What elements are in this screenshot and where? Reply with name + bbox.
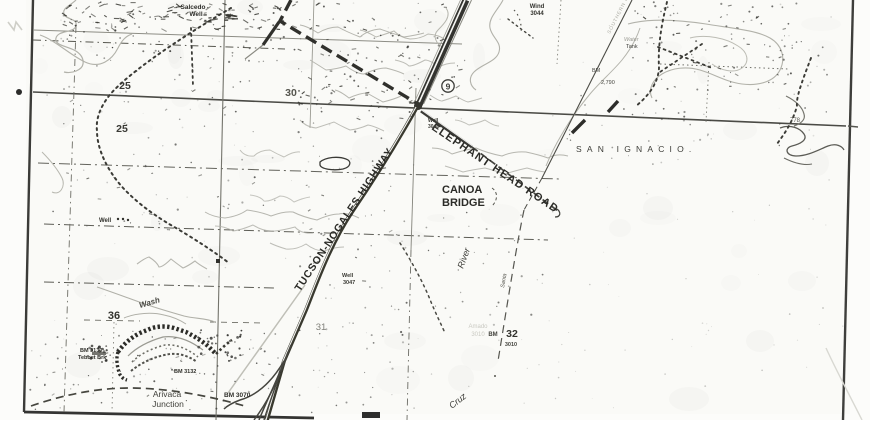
svg-text:3047: 3047 (343, 280, 355, 286)
svg-text:BRIDGE: BRIDGE (442, 197, 485, 209)
svg-text:3010: 3010 (471, 332, 485, 338)
svg-text:Tebbet Brk: Tebbet Brk (78, 355, 107, 361)
svg-text:Water: Water (624, 37, 640, 43)
svg-text:Wind: Wind (530, 4, 545, 10)
svg-text:30: 30 (285, 87, 297, 99)
svg-text:778: 778 (790, 118, 801, 124)
svg-text:25: 25 (116, 123, 128, 135)
svg-text:Well: Well (99, 218, 112, 224)
svg-text:3010: 3010 (505, 342, 517, 348)
svg-text:Arivaca: Arivaca (153, 389, 182, 399)
svg-text:3044: 3044 (530, 11, 544, 17)
svg-text:31: 31 (316, 322, 327, 333)
svg-text:SAN IGNACIO.: SAN IGNACIO. (576, 144, 697, 154)
svg-text:Salcedo: Salcedo (181, 4, 206, 11)
svg-text:BM: BM (592, 68, 601, 74)
svg-text:32: 32 (506, 328, 518, 340)
svg-text:BM: BM (488, 332, 497, 338)
svg-text:BM 3070: BM 3070 (224, 392, 251, 399)
svg-text:Tank: Tank (626, 44, 638, 50)
svg-text:Well: Well (342, 273, 354, 279)
svg-text:25: 25 (119, 80, 131, 92)
svg-text:Amado: Amado (468, 324, 488, 330)
svg-text:9: 9 (446, 82, 451, 92)
svg-text:3046: 3046 (428, 124, 439, 130)
svg-text:CANOA: CANOA (442, 184, 482, 196)
svg-text:Well: Well (189, 11, 202, 18)
svg-text:36: 36 (108, 310, 120, 322)
svg-text:Junction: Junction (152, 399, 184, 409)
svg-text:BM 3132: BM 3132 (174, 369, 196, 375)
svg-text:2,790: 2,790 (601, 80, 615, 86)
